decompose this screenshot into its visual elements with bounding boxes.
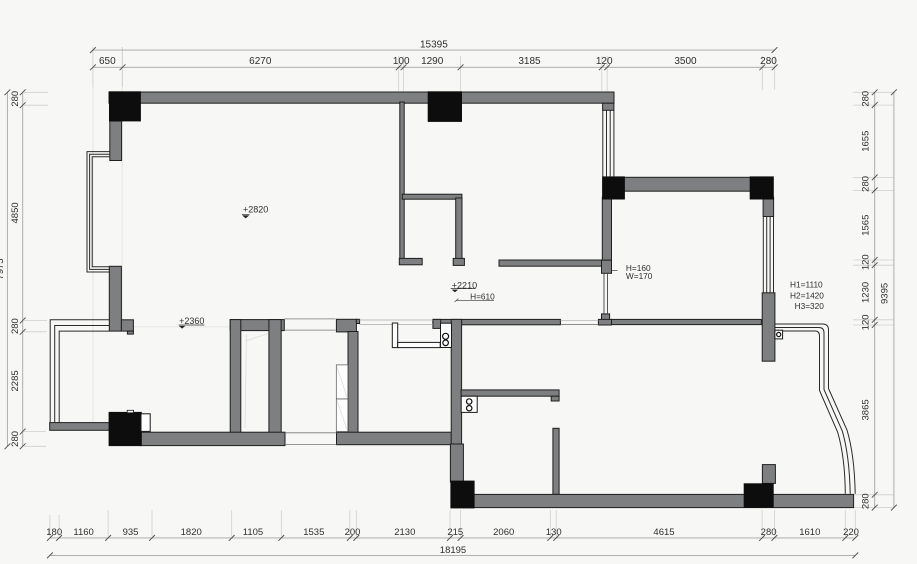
svg-text:18195: 18195 <box>440 545 466 556</box>
svg-text:4615: 4615 <box>653 527 674 538</box>
svg-text:3500: 3500 <box>674 56 697 67</box>
svg-text:3185: 3185 <box>518 56 541 67</box>
svg-text:280: 280 <box>860 91 871 107</box>
svg-text:2060: 2060 <box>493 527 514 538</box>
svg-text:280: 280 <box>10 431 21 447</box>
svg-text:1565: 1565 <box>860 215 871 236</box>
svg-text:120: 120 <box>860 254 871 270</box>
svg-text:1160: 1160 <box>73 527 93 538</box>
svg-text:7975: 7975 <box>0 258 6 279</box>
svg-text:9395: 9395 <box>879 283 890 304</box>
svg-text:H2=1420: H2=1420 <box>790 291 824 301</box>
svg-text:100: 100 <box>393 56 410 67</box>
svg-text:4850: 4850 <box>10 202 21 223</box>
svg-text:650: 650 <box>99 56 116 67</box>
svg-text:200: 200 <box>345 527 361 538</box>
svg-text:1290: 1290 <box>421 56 444 67</box>
svg-text:H1=1110: H1=1110 <box>790 280 823 290</box>
svg-text:1610: 1610 <box>799 527 820 538</box>
svg-text:2285: 2285 <box>10 370 21 391</box>
svg-text:120: 120 <box>596 56 613 67</box>
svg-text:215: 215 <box>447 527 463 538</box>
svg-text:280: 280 <box>10 318 21 334</box>
svg-text:+2820: +2820 <box>243 205 268 215</box>
svg-text:1230: 1230 <box>860 282 871 303</box>
svg-text:W=170: W=170 <box>626 271 653 281</box>
svg-text:120: 120 <box>860 314 871 330</box>
svg-text:1105: 1105 <box>243 527 263 538</box>
svg-text:280: 280 <box>761 527 777 538</box>
svg-text:H3=320: H3=320 <box>795 301 825 311</box>
svg-text:280: 280 <box>860 493 871 509</box>
svg-text:280: 280 <box>10 91 21 107</box>
svg-text:1535: 1535 <box>303 527 324 538</box>
svg-text:180: 180 <box>46 527 62 538</box>
svg-text:935: 935 <box>123 527 139 538</box>
svg-text:220: 220 <box>843 527 859 538</box>
svg-text:280: 280 <box>860 176 871 192</box>
svg-text:280: 280 <box>760 56 777 67</box>
svg-text:15395: 15395 <box>420 40 448 51</box>
svg-text:1655: 1655 <box>860 131 871 152</box>
svg-text:1820: 1820 <box>181 527 202 538</box>
svg-text:H=610: H=610 <box>470 292 495 302</box>
svg-text:3865: 3865 <box>860 399 871 420</box>
svg-text:2130: 2130 <box>394 527 415 538</box>
svg-text:130: 130 <box>546 527 562 538</box>
svg-text:6270: 6270 <box>249 56 272 67</box>
